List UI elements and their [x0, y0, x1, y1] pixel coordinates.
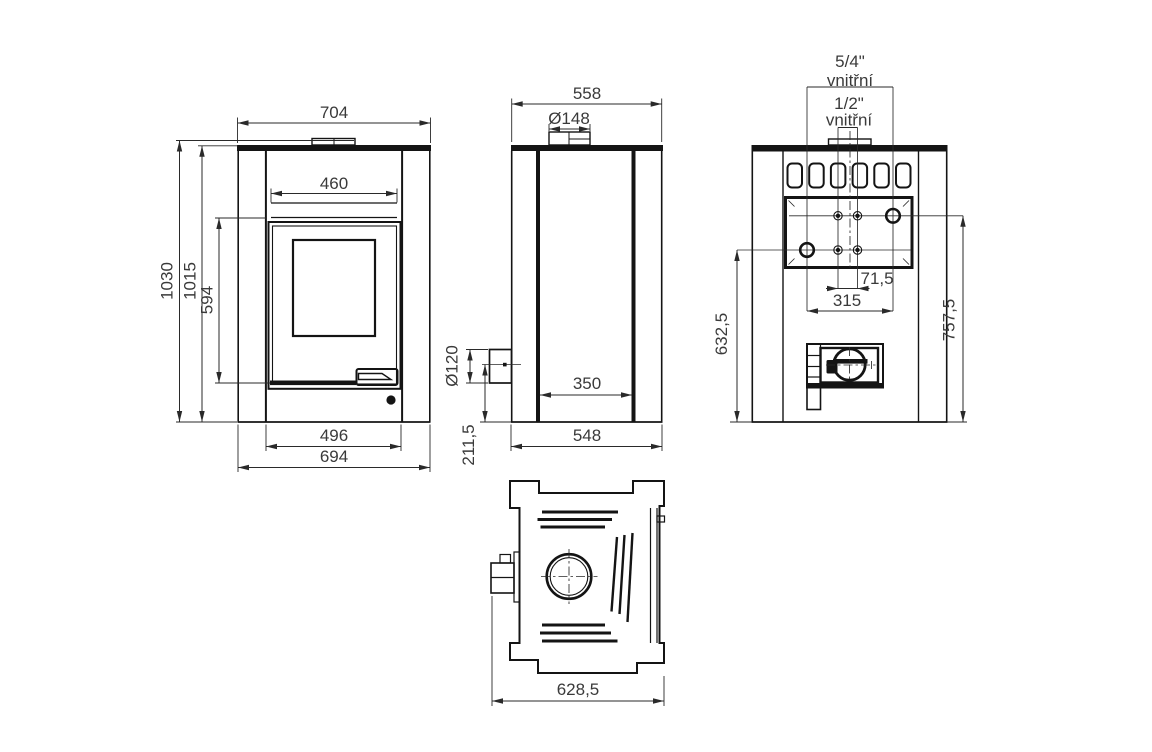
top-rear-flue-outlet [491, 552, 520, 602]
top-view: 628,5 [491, 481, 665, 706]
front-door-handle [357, 369, 398, 385]
front-door-glass [293, 240, 375, 336]
top-flue-collar-opening [541, 549, 598, 604]
front-door-frame [269, 222, 401, 389]
front-top-plate [237, 145, 431, 151]
rear-dimensions: 5/4" vnitřní 1/2" vnitřní 71,5 315 632,5… [712, 52, 967, 422]
rear-view: 5/4" vnitřní 1/2" vnitřní 71,5 315 632,5… [712, 52, 967, 422]
front-door-sill [270, 381, 356, 386]
dim-rear-pair-spacing: 71,5 [861, 269, 894, 288]
front-view: 704 460 1030 1015 594 496 694 [158, 103, 432, 472]
rear-vent-slots [788, 164, 911, 188]
label-conn-large-note: vnitřní [827, 71, 874, 90]
dim-front-firebox-width: 460 [320, 174, 348, 193]
label-conn-large-size: 5/4" [835, 52, 865, 71]
top-outline [510, 481, 664, 673]
top-hinge-notch [657, 516, 665, 522]
dim-rear-right-conn-height: 757,5 [940, 299, 959, 342]
dim-side-flue-collar-dia: Ø148 [548, 109, 590, 128]
rear-flue-bracket [807, 388, 821, 410]
front-air-control-knob [386, 395, 395, 404]
dim-front-top-width: 704 [320, 103, 348, 122]
front-door-inner-frame [273, 226, 397, 384]
top-front-edge-lines [651, 508, 665, 643]
dim-top-total-depth: 628,5 [557, 680, 600, 699]
dim-side-rear-flue-dia: Ø120 [443, 345, 462, 387]
side-dimensions: 558 Ø148 Ø120 350 211,5 548 [443, 84, 663, 466]
top-dimensions: 628,5 [492, 596, 664, 706]
drawing-canvas: 704 460 1030 1015 594 496 694 [0, 0, 1152, 752]
dim-front-door-height: 594 [198, 286, 217, 314]
dim-side-rear-flue-height: 211,5 [459, 424, 478, 465]
rear-top-plate [752, 145, 948, 152]
front-air-vent-band [271, 203, 397, 218]
dim-side-base-depth: 548 [573, 426, 601, 445]
rear-flue-outlet-box [807, 344, 883, 410]
technical-drawing-stove-dimensions: 704 460 1030 1015 594 496 694 [0, 0, 1152, 752]
side-rear-flue-outlet [482, 350, 521, 384]
dim-front-base-width: 694 [320, 447, 348, 466]
dim-front-height-total: 1030 [158, 262, 177, 300]
dim-side-depth: 558 [573, 84, 601, 103]
label-conn-small-note: vnitřní [826, 111, 873, 130]
side-view: 558 Ø148 Ø120 350 211,5 548 [443, 84, 664, 466]
dim-front-base-inner-width: 496 [320, 426, 348, 445]
dim-rear-conn-spacing: 315 [833, 291, 861, 310]
dim-rear-left-conn-height: 632,5 [712, 313, 731, 356]
dim-side-inner-depth: 350 [573, 374, 601, 393]
side-top-plate [511, 145, 663, 151]
